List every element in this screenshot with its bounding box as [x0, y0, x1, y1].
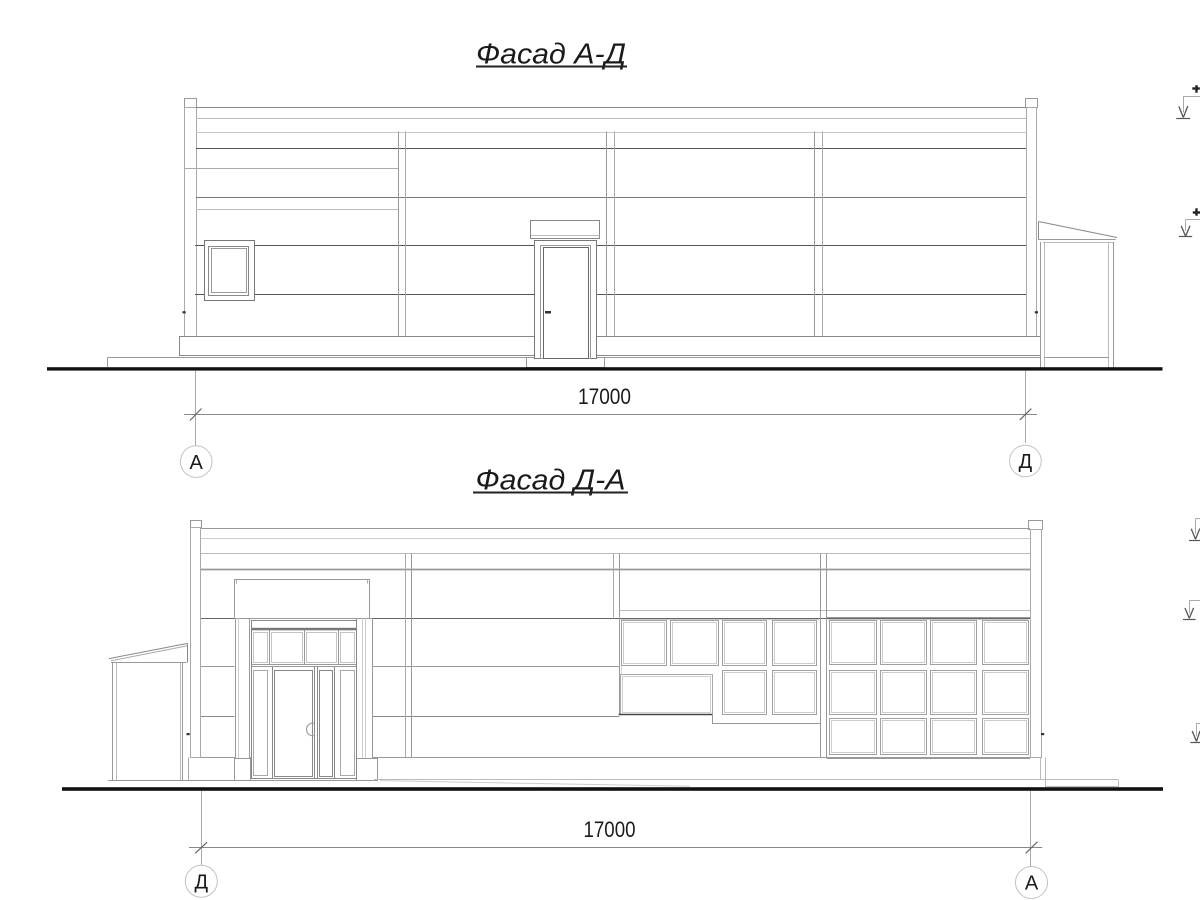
svg-text:Д: Д [195, 872, 209, 894]
svg-text:А: А [1025, 873, 1039, 895]
svg-text:17000: 17000 [578, 384, 631, 409]
svg-text:17000: 17000 [584, 817, 636, 842]
svg-text:А: А [190, 452, 204, 474]
svg-text:Д: Д [1019, 451, 1033, 473]
